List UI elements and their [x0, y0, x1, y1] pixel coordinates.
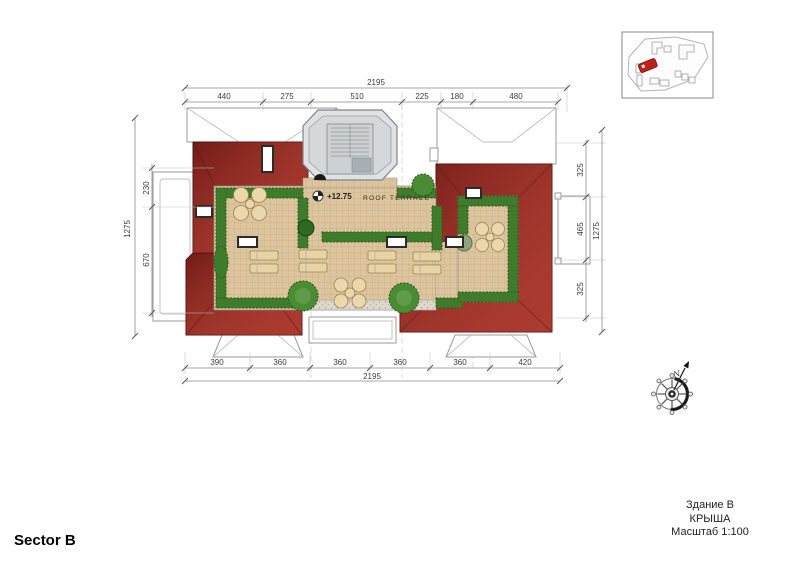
right-annex: [558, 196, 590, 264]
sector-label: Sector B: [14, 530, 76, 552]
stair-tower: [303, 110, 397, 180]
dim-bottom-seg: 360: [333, 358, 347, 367]
drawing-stamp: Здание В КРЫША Масштаб 1:100: [630, 499, 790, 540]
chimney: [430, 148, 438, 161]
dim-top-seg: 480: [509, 92, 523, 101]
dim-top-seg: 180: [450, 92, 464, 101]
dim-top-seg: 225: [415, 92, 429, 101]
site-plan-inset: [622, 32, 713, 98]
level-marker-icon: [313, 191, 323, 201]
level-mark: +12.75: [327, 192, 352, 201]
dim-bottom-total: 2195: [363, 372, 381, 381]
dim-left-seg: 670: [142, 253, 151, 267]
dim-right-seg: 465: [576, 222, 585, 236]
drawing-sheet: +12.75 ROOF TERRACE: [0, 0, 800, 571]
scale-label: Масштаб 1:100: [630, 526, 790, 540]
dim-right-seg: 325: [576, 282, 585, 296]
dim-left-total: 1275: [123, 220, 132, 238]
dim-bottom-seg: 360: [273, 358, 287, 367]
title-block: Sector B Floor 4: [14, 486, 76, 571]
upper-right-roof: [437, 108, 556, 164]
lower-left-roof: [213, 335, 303, 357]
compass-rose-icon: N: [652, 361, 693, 415]
dim-top-total: 2195: [367, 78, 385, 87]
dim-right-seg: 325: [576, 163, 585, 177]
dim-right-total: 1275: [592, 222, 601, 240]
dim-left-seg: 230: [142, 181, 151, 195]
dim-bottom-seg: 360: [393, 358, 407, 367]
planter: [298, 220, 314, 236]
lower-right-roof: [446, 335, 536, 357]
dim-top-seg: 275: [280, 92, 294, 101]
sheet-name: КРЫША: [630, 513, 790, 527]
floor-plan-drawing: +12.75 ROOF TERRACE: [0, 0, 800, 571]
dim-bottom-seg: 420: [518, 358, 532, 367]
dim-top-seg: 440: [217, 92, 231, 101]
tree: [412, 174, 434, 196]
dim-bottom-seg: 360: [453, 358, 467, 367]
dim-bottom-seg: 390: [210, 358, 224, 367]
dim-top-seg: 510: [350, 92, 364, 101]
room-label: ROOF TERRACE: [363, 195, 430, 202]
building-name: Здание В: [630, 499, 790, 513]
